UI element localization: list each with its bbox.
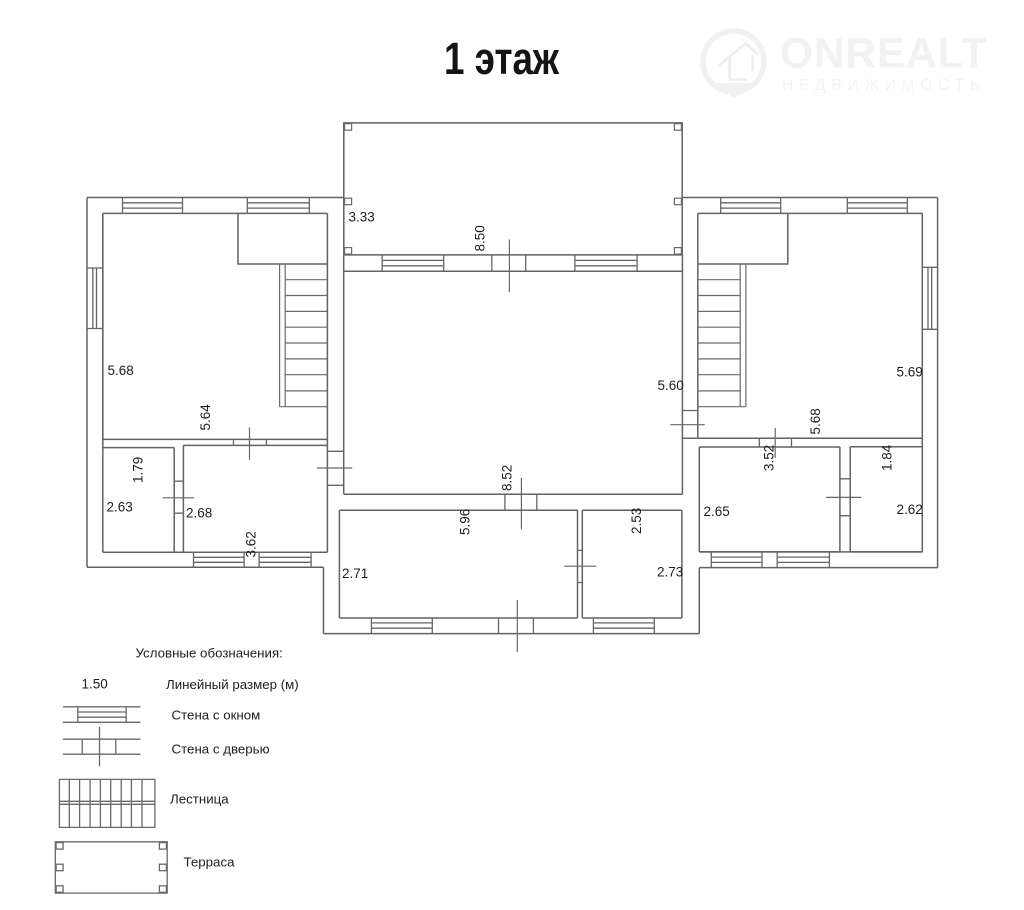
svg-text:Лестница: Лестница: [170, 792, 229, 807]
svg-text:2.65: 2.65: [704, 504, 730, 519]
svg-text:5.60: 5.60: [658, 378, 684, 393]
svg-text:5.64: 5.64: [198, 404, 213, 431]
svg-text:2.73: 2.73: [657, 565, 683, 580]
svg-text:1.50: 1.50: [82, 677, 108, 692]
svg-text:Стена с окном: Стена с окном: [172, 708, 261, 723]
svg-text:ONREALT: ONREALT: [780, 31, 988, 78]
svg-text:2.68: 2.68: [186, 506, 212, 521]
svg-text:5.68: 5.68: [808, 408, 823, 434]
svg-text:2.62: 2.62: [897, 502, 923, 517]
svg-text:3.33: 3.33: [349, 210, 375, 225]
svg-text:1 этаж: 1 этаж: [444, 33, 560, 84]
svg-text:3.52: 3.52: [762, 445, 777, 471]
svg-text:5.68: 5.68: [108, 363, 134, 378]
svg-text:1.79: 1.79: [131, 457, 146, 483]
svg-text:НЕДВИЖИМОСТЬ: НЕДВИЖИМОСТЬ: [782, 77, 986, 94]
svg-text:2.63: 2.63: [107, 500, 133, 515]
svg-text:2.53: 2.53: [629, 508, 644, 534]
svg-text:Терраса: Терраса: [184, 855, 236, 870]
svg-text:8.50: 8.50: [473, 225, 488, 251]
svg-text:8.52: 8.52: [500, 465, 515, 491]
svg-text:5.96: 5.96: [458, 509, 473, 535]
svg-text:3.62: 3.62: [244, 531, 259, 557]
svg-text:Стена с дверью: Стена с дверью: [172, 742, 270, 757]
svg-text:1.84: 1.84: [880, 444, 895, 471]
svg-text:Линейный размер (м): Линейный размер (м): [166, 677, 299, 692]
svg-text:Условные обозначения:: Условные обозначения:: [136, 646, 283, 661]
svg-text:2.71: 2.71: [342, 566, 368, 581]
svg-text:5.69: 5.69: [897, 365, 923, 380]
